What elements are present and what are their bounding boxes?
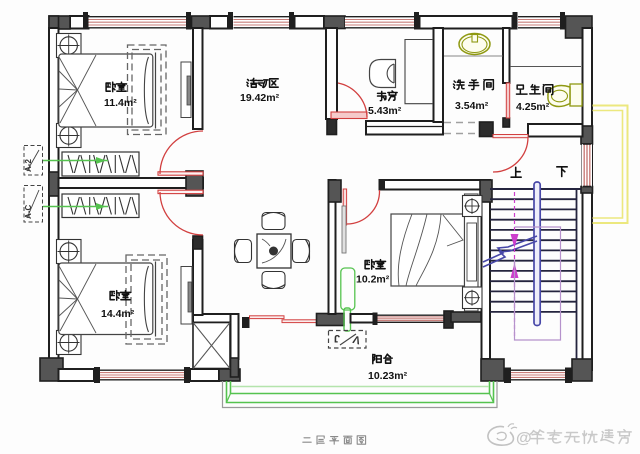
- svg-text:A-C: A-C: [24, 205, 33, 219]
- svg-text:A-2: A-2: [24, 159, 33, 172]
- svg-text:5.43m²: 5.43m²: [368, 105, 402, 117]
- svg-text:10.2m²: 10.2m²: [356, 274, 390, 286]
- svg-text:11.4m²: 11.4m²: [104, 97, 137, 109]
- svg-text:4.25m²: 4.25m²: [516, 101, 550, 113]
- svg-text:3.54m²: 3.54m²: [455, 100, 489, 112]
- svg-text:14.4m²: 14.4m²: [101, 308, 135, 320]
- svg-text:10.23m²: 10.23m²: [368, 370, 408, 382]
- svg-text:J: J: [334, 332, 340, 344]
- svg-text:19.42m²: 19.42m²: [240, 92, 280, 104]
- svg-text:@: @: [516, 430, 532, 447]
